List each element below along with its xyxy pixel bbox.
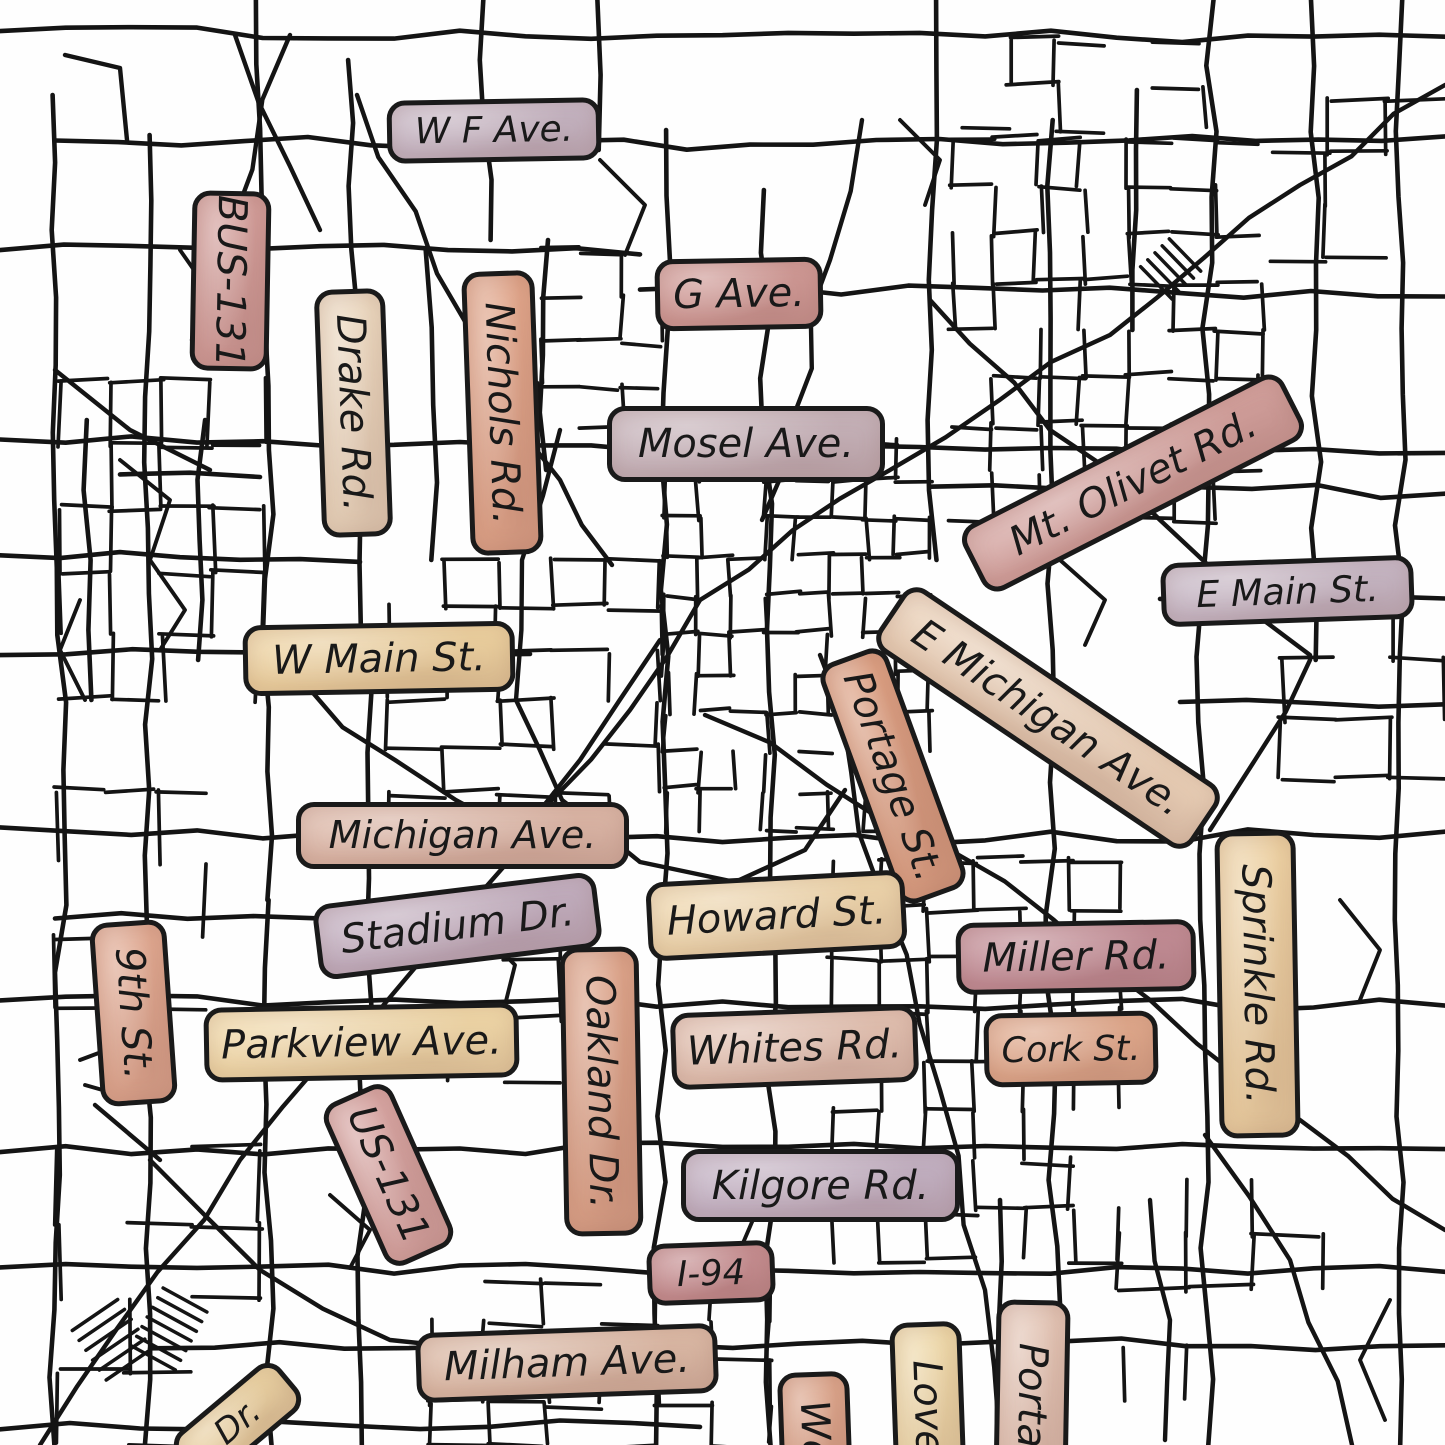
street-label-e-main-st: E Main St. — [1160, 555, 1415, 628]
street-label-mosel-ave: Mosel Ave. — [607, 406, 885, 482]
street-label-i-94: I-94 — [646, 1240, 776, 1306]
street-label-bus-131: BUS-131 — [189, 190, 271, 371]
street-label-michigan-ave: Michigan Ave. — [296, 802, 629, 869]
street-label-love-partial: Love — [889, 1321, 967, 1445]
street-label-us-131: US-131 — [318, 1078, 459, 1271]
street-label-w-main-st: W Main St. — [242, 621, 515, 697]
map-canvas: W F Ave.BUS-131Drake Rd.Nichols Rd.G Ave… — [0, 0, 1445, 1445]
street-label-milham-ave: Milham Ave. — [415, 1323, 719, 1403]
street-label-oakland-dr: Oakland Dr. — [559, 946, 643, 1236]
street-label-cork-st: Cork St. — [983, 1010, 1158, 1087]
street-label-whites-rd: Whites Rd. — [670, 1005, 920, 1091]
street-label-drake-rd: Drake Rd. — [314, 288, 394, 538]
street-label-kilgore-rd: Kilgore Rd. — [681, 1149, 960, 1222]
street-label-howard-st: Howard St. — [645, 869, 908, 961]
street-label-miller-rd: Miller Rd. — [955, 919, 1196, 995]
street-label-dr-partial: Dr. — [167, 1356, 309, 1445]
street-labels-layer: W F Ave.BUS-131Drake Rd.Nichols Rd.G Ave… — [0, 0, 1445, 1445]
street-label-wf-ave: W F Ave. — [386, 97, 601, 164]
street-label-g-ave: G Ave. — [654, 257, 823, 332]
street-label-parkview-ave: Parkview Ave. — [203, 1002, 519, 1082]
street-label-we-partial: We — [777, 1371, 853, 1445]
street-label-nichols-rd: Nichols Rd. — [461, 270, 544, 556]
street-label-sprinkle-rd: Sprinkle Rd. — [1214, 830, 1300, 1138]
street-label-ninth-st: 9th St. — [89, 919, 179, 1108]
street-label-porta-partial: Porta — [993, 1299, 1070, 1445]
